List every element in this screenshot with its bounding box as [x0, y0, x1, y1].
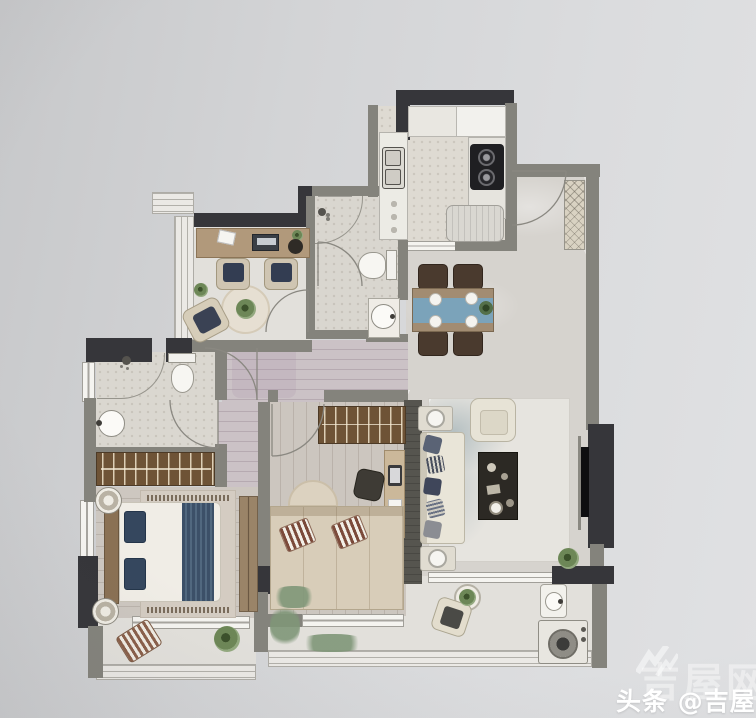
fridge [446, 205, 504, 242]
laptop-screen [257, 238, 276, 245]
dining-chair-top-left [418, 264, 448, 290]
kitchen-sink [382, 147, 405, 189]
washer-drum [548, 629, 578, 659]
wall-corridor-left [215, 444, 227, 487]
dining-chair-top-right [453, 264, 483, 290]
balcony-shrub-3 [298, 634, 366, 652]
nightstand-ornate-top [95, 487, 122, 514]
chair-cushion [271, 263, 292, 282]
master-basin-bowl [98, 410, 125, 437]
armchair-seat [480, 410, 508, 435]
wall-kitchen-left [368, 105, 378, 197]
decor-bowl [489, 501, 503, 515]
dining-chair-bottom-right [453, 330, 483, 356]
sink-bowl-bottom [385, 169, 401, 185]
guest-shower-head-icon [318, 208, 326, 216]
bed-head-shade [271, 507, 403, 516]
master-balcony-plant [214, 626, 240, 652]
plate [429, 293, 442, 306]
table-lamp-top [426, 409, 445, 428]
sink-faucet [558, 599, 563, 604]
study-top-ac-platform [152, 192, 194, 214]
study-chair-left [216, 258, 250, 290]
plate [465, 315, 478, 328]
master-wardrobe [96, 452, 215, 486]
desk-round-tray [288, 239, 303, 254]
sofa-pillow-2 [426, 455, 446, 475]
guest-toilet-bowl [358, 252, 386, 279]
kitchen-slider-door [406, 241, 458, 251]
wall-study-bottom [188, 340, 312, 352]
wall-bedroom2-top-a [268, 390, 278, 402]
bed-end-bench [239, 496, 258, 612]
sofa-pillow-5 [423, 520, 443, 540]
wall-kitchen-top [396, 90, 514, 105]
study-small-plant [194, 283, 208, 297]
wall-guest-bath-bottom [306, 330, 370, 339]
nightstand-ornate-bottom [92, 598, 119, 625]
centerpiece-plant-icon [479, 301, 493, 315]
wall-bath-right [215, 340, 227, 400]
study-chair-right [264, 258, 298, 290]
channel-watermark: 头条 @吉屋网 [616, 682, 756, 718]
master-pillow-bottom [124, 558, 146, 590]
kitchen-shelf-circles [384, 196, 404, 238]
decor-dot [506, 499, 514, 507]
plate [465, 292, 478, 305]
tv-screen [581, 447, 589, 517]
burner-bottom [478, 169, 495, 186]
balcony-pot-plant [459, 589, 476, 606]
wall-bedroom2-top-b [324, 390, 408, 402]
master-bed-runner [182, 503, 214, 601]
decor-dot [487, 463, 496, 472]
washer-control-dot [581, 627, 586, 632]
wall-right-outer [586, 164, 599, 430]
rug-text-border-bottom [147, 607, 231, 613]
table-lamp-bottom [428, 549, 447, 568]
washing-machine [538, 620, 588, 664]
master-toilet-tank [168, 353, 196, 363]
study-rug-plant [236, 299, 256, 319]
entry-shoe-cabinet [564, 180, 585, 250]
floor-plan-photo: 吉屋网 头条 @吉屋网 [0, 0, 756, 718]
balcony-shrub-2 [270, 606, 300, 646]
chair-cushion [223, 263, 244, 282]
rug-text-border-top [147, 495, 231, 501]
second-wardrobe [318, 406, 406, 444]
wall-left-outer [84, 398, 96, 502]
wall-study-top [194, 213, 312, 227]
desk-phone [388, 465, 402, 486]
washer-control-dot [581, 637, 586, 642]
dining-chair-bottom-left [418, 330, 448, 356]
armchair-seat [192, 305, 223, 335]
coffee-table [478, 452, 518, 520]
wall-guest-bath-left [306, 196, 315, 336]
guest-basin-faucet [390, 314, 395, 319]
burner-top [478, 149, 495, 166]
balcony-shrub-1 [272, 586, 316, 608]
phone-screen [390, 468, 400, 483]
balcony-sink [540, 584, 567, 618]
desk-laptop [252, 234, 279, 251]
sofa-pillow-3 [423, 477, 442, 496]
living-balcony-slider [428, 572, 554, 583]
decor-dot [501, 473, 508, 480]
wall-living-balcony-black [552, 566, 614, 584]
wall-kitchen-right [505, 103, 517, 251]
master-balcony-railing [96, 664, 256, 680]
master-pillow-top [124, 511, 146, 543]
living-armchair [470, 398, 516, 442]
master-toilet-bowl [171, 364, 194, 393]
second-bedroom-balcony-window [302, 614, 404, 627]
armchair-seat [439, 606, 464, 630]
wall-bedroom-divider [258, 402, 270, 570]
sink-bowl-top [385, 150, 401, 166]
master-bed-headboard [104, 500, 119, 604]
plate [429, 315, 442, 328]
master-bedroom-left-window [80, 500, 94, 558]
master-bath-left-window [82, 362, 95, 402]
wall-balcony-left-corner [88, 626, 103, 678]
master-shower-head-icon [122, 356, 131, 365]
wall-balcony-right [592, 584, 607, 668]
guest-toilet-tank [386, 250, 397, 280]
master-basin-faucet [96, 420, 102, 426]
hallway-tint-patch [232, 344, 296, 398]
wall-tv-feature [588, 424, 614, 548]
kitchen-corner-cabinet [456, 106, 506, 137]
living-corner-plant [558, 548, 579, 569]
dining-table [412, 288, 494, 332]
decor-book [486, 484, 500, 495]
gas-stove [470, 144, 504, 190]
